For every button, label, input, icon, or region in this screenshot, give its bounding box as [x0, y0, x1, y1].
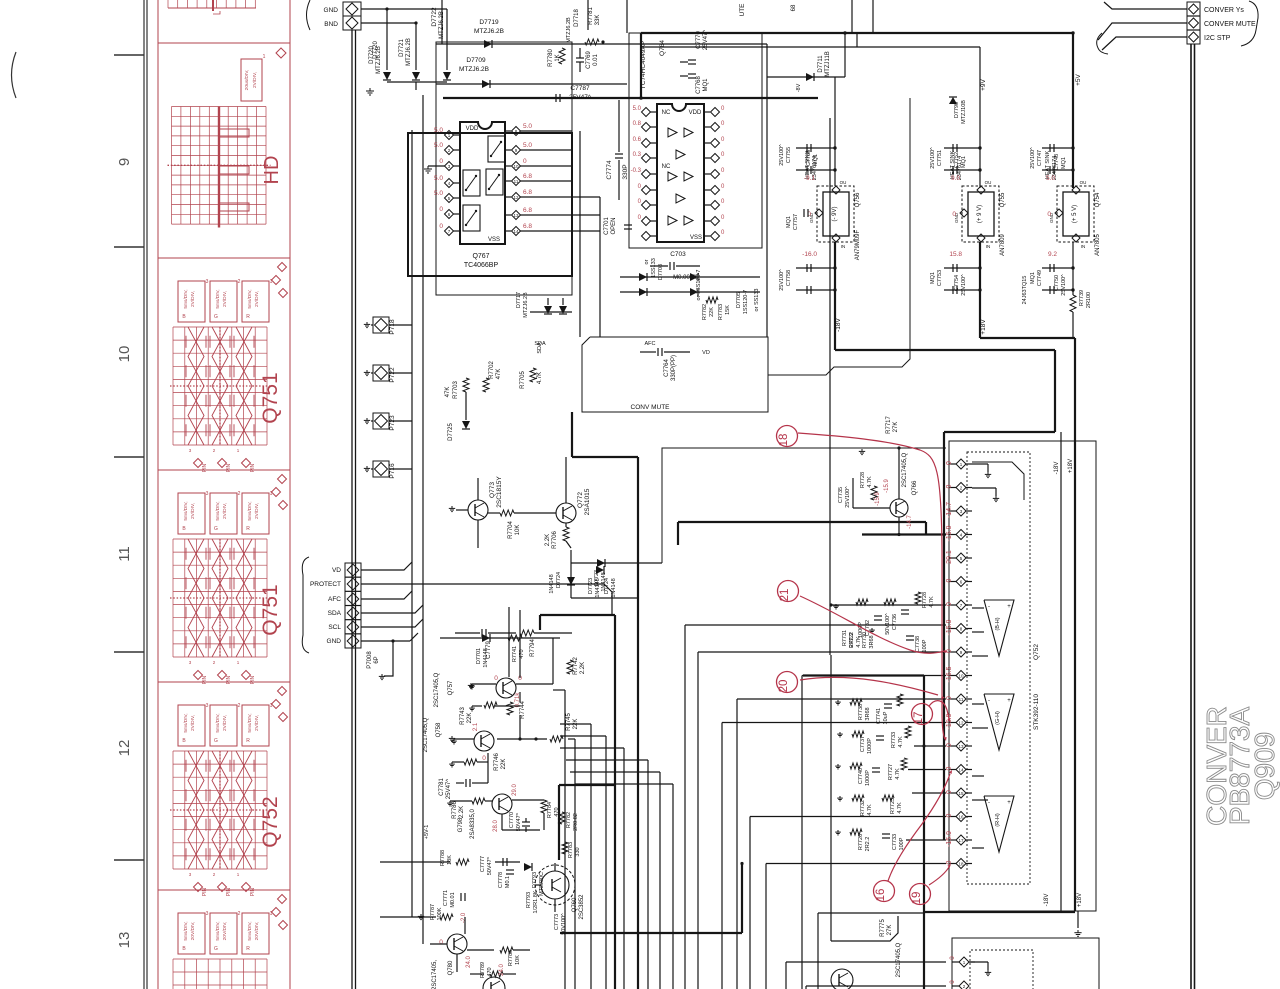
svg-text:-18V: -18V	[1044, 894, 1050, 907]
svg-text:1K: 1K	[555, 54, 561, 61]
svg-text:2.2K: 2.2K	[459, 806, 465, 818]
svg-text:25V100^: 25V100^	[1061, 274, 1067, 296]
svg-text:CONVER MUTE: CONVER MUTE	[1204, 21, 1256, 28]
svg-text:R7788: R7788	[508, 950, 514, 966]
svg-text:-14.7: -14.7	[946, 502, 953, 518]
svg-text:1000P: 1000P	[865, 770, 871, 786]
svg-text:24J63TQ15: 24J63TQ15	[1022, 276, 1028, 305]
svg-text:MQ1: MQ1	[961, 156, 967, 168]
svg-text:0: 0	[482, 755, 486, 762]
svg-text:25V100^: 25V100^	[930, 147, 936, 169]
svg-text:C7747: C7747	[1037, 150, 1043, 166]
svg-text:AN7805: AN7805	[1095, 233, 1101, 255]
svg-text:C7756: C7756	[806, 150, 812, 166]
svg-text:10: 10	[116, 346, 133, 363]
svg-text:AFC: AFC	[645, 341, 656, 347]
svg-text:0: 0	[439, 939, 443, 946]
svg-text:or SS133: or SS133	[754, 289, 760, 312]
svg-text:C7737: C7737	[860, 736, 866, 752]
svg-text:D7723: D7723	[594, 570, 600, 586]
svg-text:-15.9: -15.9	[875, 492, 881, 506]
svg-text:R7793: R7793	[526, 892, 532, 908]
svg-text:330P: 330P	[622, 164, 629, 179]
svg-text:Q756: Q756	[855, 192, 861, 207]
svg-text:-18V: -18V	[1054, 462, 1060, 475]
svg-text:12: 12	[513, 195, 519, 200]
svg-text:GND: GND	[327, 638, 342, 645]
svg-text:2SC17405,Q: 2SC17405,Q	[896, 942, 902, 977]
svg-text:D7719: D7719	[479, 19, 499, 26]
svg-text:(+ 5 V): (+ 5 V)	[1072, 205, 1078, 223]
svg-text:(- 9V): (- 9V)	[832, 206, 838, 221]
svg-text:0: 0	[439, 158, 443, 165]
svg-text:D7705: D7705	[736, 292, 742, 308]
svg-text:Q752: Q752	[259, 796, 282, 847]
svg-text:C7738: C7738	[915, 636, 921, 652]
svg-text:29.1: 29.1	[946, 550, 953, 564]
svg-text:5.0: 5.0	[434, 142, 443, 149]
svg-text:AN79M09F: AN79M09F	[855, 229, 861, 260]
svg-text:(R-H): (R-H)	[995, 813, 1001, 827]
svg-text:R7732: R7732	[860, 800, 866, 816]
svg-text:VDD: VDD	[689, 110, 702, 116]
svg-text:3R68: 3R68	[865, 707, 871, 720]
svg-text:MTZJ6.2B: MTZJ6.2B	[523, 292, 529, 318]
svg-text:3: 3	[206, 911, 209, 917]
svg-text:4.7K: 4.7K	[895, 768, 901, 780]
svg-text:5ms/DIV,: 5ms/DIV,	[183, 289, 189, 308]
svg-text:R7727: R7727	[888, 764, 894, 780]
svg-text:13: 13	[116, 932, 133, 949]
svg-text:C7754: C7754	[954, 275, 960, 291]
svg-text:12: 12	[958, 721, 964, 726]
svg-text:OU: OU	[1080, 180, 1087, 185]
svg-text:VDD: VDD	[466, 126, 479, 132]
svg-text:29.0: 29.0	[512, 784, 518, 796]
svg-text:5ms/DIV,: 5ms/DIV,	[247, 921, 253, 940]
svg-text:G: G	[214, 526, 218, 532]
svg-text:R7728: R7728	[860, 472, 866, 488]
svg-text:22K: 22K	[467, 713, 473, 724]
svg-text:R7731: R7731	[842, 630, 848, 646]
svg-text:IN: IN	[841, 244, 846, 249]
svg-text:C7777: C7777	[480, 856, 486, 872]
svg-text:100K: 100K	[437, 907, 443, 920]
svg-text:Q751: Q751	[259, 584, 282, 635]
svg-text:NC: NC	[662, 110, 671, 116]
svg-text:27K: 27K	[887, 925, 893, 936]
svg-text:C7758: C7758	[786, 270, 792, 286]
svg-text:M0.1: M0.1	[505, 876, 511, 888]
svg-text:D7722: D7722	[431, 7, 438, 27]
svg-text:6P: 6P	[374, 656, 380, 663]
svg-text:-14.7: -14.7	[907, 515, 913, 529]
svg-text:AFC: AFC	[328, 596, 341, 603]
svg-text:Q755: Q755	[1000, 192, 1006, 207]
svg-text:4.7K: 4.7K	[867, 804, 873, 816]
svg-text:2SC17405,Q: 2SC17405,Q	[423, 717, 429, 752]
svg-text:5ms/DIV,: 5ms/DIV,	[215, 501, 221, 520]
svg-text:33K: 33K	[595, 15, 601, 26]
svg-text:20V/DIV,: 20V/DIV,	[254, 922, 260, 941]
svg-text:C7740: C7740	[858, 768, 864, 784]
svg-text:+: +	[1007, 698, 1011, 704]
svg-text:MQ1: MQ1	[813, 154, 819, 166]
svg-text:2SC17405,Q: 2SC17405,Q	[434, 672, 440, 707]
svg-text:P722: P722	[389, 367, 396, 383]
svg-text:+5V-1: +5V-1	[424, 825, 430, 840]
svg-text:2SC17405,: 2SC17405,	[432, 960, 438, 989]
svg-text:2V/DIV,: 2V/DIV,	[190, 503, 196, 519]
svg-text:20: 20	[778, 680, 790, 693]
svg-text:SDA: SDA	[328, 610, 342, 617]
svg-text:Q767: Q767	[472, 253, 489, 260]
svg-text:(G-H): (G-H)	[995, 711, 1001, 725]
svg-text:2V/DIV,: 2V/DIV,	[222, 291, 228, 307]
svg-text:PIN: PIN	[226, 463, 232, 472]
svg-text:CONVER: CONVER	[1201, 706, 1232, 826]
svg-text:Q760: Q760	[572, 897, 578, 912]
svg-text:2.2K: 2.2K	[580, 662, 586, 674]
svg-text:-0.3: -0.3	[631, 168, 642, 174]
svg-text:5ms/DIV,: 5ms/DIV,	[183, 501, 189, 520]
svg-text:R7784: R7784	[547, 802, 553, 818]
svg-text:D7790: D7790	[954, 102, 960, 118]
svg-text:1SS133: 1SS133	[651, 258, 657, 278]
svg-text:0: 0	[946, 790, 953, 794]
svg-text:24.0: 24.0	[466, 956, 472, 968]
svg-text:C7768: C7768	[696, 76, 702, 94]
svg-text:Q757: Q757	[448, 680, 454, 695]
svg-text:5.0: 5.0	[523, 123, 532, 130]
svg-text:1SS120-7: 1SS120-7	[743, 290, 749, 314]
svg-text:2V/DIV,: 2V/DIV,	[254, 503, 260, 519]
svg-text:21: 21	[779, 589, 791, 602]
svg-text:5.0: 5.0	[633, 106, 642, 112]
svg-text:C703: C703	[670, 251, 686, 258]
svg-text:0: 0	[946, 649, 953, 653]
svg-text:18: 18	[778, 434, 790, 447]
svg-text:R7739: R7739	[1079, 290, 1085, 306]
svg-text:C7787: C7787	[570, 85, 590, 92]
svg-text:D7717: D7717	[516, 292, 522, 308]
svg-text:5ms/DIV,: 5ms/DIV,	[247, 713, 253, 732]
svg-text:22K: 22K	[573, 719, 579, 730]
svg-text:D7711: D7711	[818, 55, 824, 73]
svg-text:-15.9: -15.9	[884, 479, 890, 493]
svg-text:0: 0	[494, 675, 498, 682]
svg-text:R7788: R7788	[440, 850, 446, 866]
svg-text:47K: 47K	[445, 387, 451, 398]
svg-text:BND: BND	[324, 21, 338, 28]
svg-text:6.8: 6.8	[523, 173, 532, 180]
svg-text:20us/DIV,: 20us/DIV,	[244, 70, 250, 91]
svg-text:470: 470	[487, 967, 493, 976]
svg-text:2: 2	[238, 491, 241, 497]
svg-text:-8V: -8V	[796, 83, 802, 92]
svg-text:2V/DIV,: 2V/DIV,	[222, 503, 228, 519]
svg-text:C7757: C7757	[793, 214, 799, 230]
svg-text:2V/DIV,: 2V/DIV,	[254, 715, 260, 731]
svg-text:25V100^: 25V100^	[845, 486, 851, 508]
svg-text:25V100^: 25V100^	[961, 274, 967, 296]
svg-text:R7745: R7745	[566, 713, 572, 731]
svg-text:20V/DIV,: 20V/DIV,	[190, 922, 196, 941]
svg-text:5.0: 5.0	[434, 175, 443, 182]
svg-text:-2.0: -2.0	[461, 912, 467, 923]
svg-text:18K: 18K	[447, 855, 453, 865]
svg-text:D7721: D7721	[399, 39, 405, 57]
svg-text:2SA8335,0: 2SA8335,0	[470, 808, 476, 838]
svg-text:19: 19	[911, 892, 923, 905]
svg-text:10: 10	[958, 674, 964, 679]
svg-text:18: 18	[958, 862, 964, 867]
svg-text:10: 10	[513, 164, 519, 169]
svg-text:-15.9: -15.9	[946, 525, 953, 541]
svg-text:-: -	[988, 800, 990, 806]
svg-text:C7752: C7752	[954, 152, 960, 168]
svg-text:5ms/DIV,: 5ms/DIV,	[215, 921, 221, 940]
svg-text:R: R	[246, 526, 250, 532]
svg-text:C7773: C7773	[554, 914, 560, 930]
svg-text:12: 12	[116, 740, 133, 757]
svg-text:P718: P718	[389, 319, 396, 335]
svg-text:PIN: PIN	[202, 675, 208, 684]
svg-text:VD: VD	[332, 567, 341, 574]
svg-text:5ms/DIV,: 5ms/DIV,	[215, 713, 221, 732]
svg-text:Q752: Q752	[1033, 644, 1040, 660]
svg-text:IN: IN	[1081, 244, 1086, 249]
svg-text:4.7K: 4.7K	[898, 736, 904, 748]
svg-text:0: 0	[946, 813, 953, 817]
svg-text:3R68: 3R68	[869, 635, 875, 648]
svg-text:15K: 15K	[725, 305, 731, 315]
svg-text:0: 0	[946, 461, 953, 465]
svg-text:2SC3852: 2SC3852	[579, 894, 585, 920]
svg-text:5ms/DIV,: 5ms/DIV,	[183, 713, 189, 732]
svg-text:5.0: 5.0	[1046, 175, 1055, 182]
svg-text:13: 13	[958, 744, 964, 749]
svg-text:D7718: D7718	[574, 9, 580, 27]
svg-text:R: R	[246, 946, 250, 952]
svg-text:0: 0	[952, 211, 956, 218]
svg-text:G798: G798	[458, 817, 464, 832]
svg-text:MTZJ6.2B: MTZJ6.2B	[566, 17, 572, 43]
svg-text:R7702: R7702	[489, 361, 495, 379]
svg-text:D7720: D7720	[369, 46, 375, 64]
svg-text:4.7K: 4.7K	[537, 372, 543, 384]
svg-text:P723: P723	[389, 415, 396, 431]
svg-text:CONVER Ys: CONVER Ys	[1204, 7, 1244, 14]
svg-text:IN: IN	[986, 244, 991, 249]
svg-text:MTZJ11B: MTZJ11B	[825, 51, 831, 77]
svg-text:1/2R1.8K: 1/2R1.8K	[533, 890, 539, 913]
svg-text:R7782: R7782	[566, 812, 572, 828]
svg-text:0: 0	[439, 223, 443, 230]
svg-text:1: 1	[263, 54, 266, 60]
svg-text:R7733: R7733	[891, 732, 897, 748]
svg-text:16: 16	[958, 815, 964, 820]
svg-text:VD: VD	[702, 350, 710, 356]
svg-text:OU: OU	[840, 180, 847, 185]
svg-text:17: 17	[913, 712, 925, 725]
svg-text:+5V: +5V	[1075, 73, 1082, 85]
svg-text:10K: 10K	[515, 955, 521, 965]
svg-text:OU: OU	[985, 180, 992, 185]
svg-text:0: 0	[949, 956, 956, 960]
svg-text:C7741: C7741	[876, 708, 882, 724]
svg-text:10K: 10K	[515, 525, 521, 536]
svg-text:R7783: R7783	[568, 842, 574, 858]
svg-text:9: 9	[116, 158, 133, 166]
svg-text:1N4148: 1N4148	[601, 572, 607, 591]
svg-text:2.1: 2.1	[473, 722, 479, 731]
svg-text:PIN: PIN	[202, 463, 208, 472]
svg-text:17: 17	[958, 838, 964, 843]
svg-text:2: 2	[238, 279, 241, 285]
svg-text:C7749: C7749	[1037, 270, 1043, 286]
svg-text:-15.9: -15.9	[946, 831, 953, 847]
svg-text:5ms/DIV,: 5ms/DIV,	[215, 289, 221, 308]
svg-text:2R2.2: 2R2.2	[865, 837, 871, 852]
svg-text:C7751: C7751	[937, 150, 943, 166]
svg-text:GND: GND	[324, 7, 339, 14]
svg-text:2V/DIV,: 2V/DIV,	[190, 291, 196, 307]
svg-text:0: 0	[946, 696, 953, 700]
svg-text:5ms/DIV,: 5ms/DIV,	[183, 921, 189, 940]
svg-text:1N4148: 1N4148	[549, 574, 555, 593]
svg-text:MQ1: MQ1	[1061, 157, 1067, 169]
svg-text:11: 11	[959, 697, 964, 702]
svg-text:C7750: C7750	[1054, 275, 1060, 291]
svg-text:C7701: C7701	[604, 217, 610, 235]
svg-text:R7744: R7744	[520, 701, 526, 719]
svg-text:-: -	[988, 604, 990, 610]
svg-text:0: 0	[946, 743, 953, 747]
svg-text:R7705: R7705	[520, 371, 526, 389]
svg-text:R7704: R7704	[508, 521, 514, 539]
svg-text:2: 2	[238, 911, 241, 917]
svg-text:330: 330	[575, 847, 581, 856]
svg-text:(+ 9 V): (+ 9 V)	[977, 205, 983, 223]
svg-text:UTE: UTE	[739, 3, 746, 17]
svg-text:R7723: R7723	[890, 798, 896, 814]
svg-text:0.6: 0.6	[633, 137, 642, 143]
svg-text:-16.5: -16.5	[946, 666, 953, 682]
svg-text:3: 3	[206, 279, 209, 285]
svg-text:0: 0	[946, 578, 953, 582]
svg-text:+: +	[1007, 604, 1011, 610]
svg-text:M0.01: M0.01	[450, 892, 456, 907]
svg-text:14: 14	[513, 229, 519, 234]
svg-text:5ms/DIV,: 5ms/DIV,	[247, 289, 253, 308]
svg-text:R7794: R7794	[530, 639, 536, 657]
svg-text:VSS: VSS	[488, 237, 500, 243]
svg-text:C7748: C7748	[1054, 154, 1060, 170]
svg-text:PIN: PIN	[250, 887, 256, 896]
svg-text:R7789: R7789	[480, 962, 486, 978]
svg-text:C7769: C7769	[586, 51, 592, 69]
svg-text:OPEN: OPEN	[611, 217, 617, 234]
svg-text:R: R	[246, 314, 250, 320]
svg-text:2SC17405,Q: 2SC17405,Q	[902, 452, 908, 487]
svg-text:2V/DIV,: 2V/DIV,	[190, 715, 196, 731]
svg-text:D7709: D7709	[466, 57, 486, 64]
svg-text:25V47^: 25V47^	[446, 779, 452, 799]
svg-text:50V47^: 50V47^	[516, 812, 522, 831]
svg-text:0: 0	[523, 158, 527, 165]
svg-text:R7738: R7738	[858, 704, 864, 720]
svg-text:0.01: 0.01	[593, 54, 599, 66]
svg-text:HD: HD	[261, 156, 283, 185]
svg-text:27K: 27K	[893, 422, 899, 433]
svg-text:50V100^: 50V100^	[885, 613, 891, 635]
svg-text:C7771: C7771	[443, 890, 449, 906]
svg-text:G: G	[214, 314, 218, 320]
svg-text:C7781: C7781	[439, 778, 445, 796]
svg-text:MQ1: MQ1	[1030, 272, 1036, 284]
svg-text:R7703: R7703	[453, 381, 459, 399]
svg-text:R7786: R7786	[452, 801, 458, 819]
svg-text:MQ1: MQ1	[703, 78, 709, 92]
svg-text:R7775: R7775	[880, 919, 886, 937]
svg-text:C7755: C7755	[786, 147, 792, 163]
svg-text:Q754: Q754	[1095, 192, 1101, 207]
svg-text:0: 0	[946, 860, 953, 864]
svg-text:2V/DIV,: 2V/DIV,	[222, 715, 228, 731]
svg-text:2: 2	[238, 703, 241, 709]
svg-text:+18V: +18V	[1077, 893, 1083, 907]
svg-text:+9V: +9V	[980, 78, 987, 90]
svg-text:20V/DIV,: 20V/DIV,	[222, 922, 228, 941]
svg-text:0: 0	[439, 206, 443, 213]
svg-text:PIN: PIN	[226, 887, 232, 896]
svg-text:Q780: Q780	[448, 960, 454, 975]
svg-text:C7764: C7764	[664, 359, 670, 377]
svg-text:6.8: 6.8	[523, 189, 532, 196]
svg-text:PIN: PIN	[250, 675, 256, 684]
svg-text:0: 0	[1047, 211, 1051, 218]
svg-text:6.8: 6.8	[523, 223, 532, 230]
svg-text:-: -	[988, 698, 990, 704]
svg-text:C7753: C7753	[937, 270, 943, 286]
svg-text:PIN: PIN	[202, 887, 208, 896]
svg-text:2R100: 2R100	[1086, 292, 1092, 308]
svg-text:SCL: SCL	[328, 624, 341, 631]
svg-text:5.0: 5.0	[434, 127, 443, 134]
svg-text:47K: 47K	[496, 369, 502, 380]
svg-text:2V/DIV,: 2V/DIV,	[252, 72, 258, 88]
svg-text:13: 13	[513, 213, 519, 218]
svg-text:R7783: R7783	[718, 304, 724, 320]
svg-text:2V/DIV,: 2V/DIV,	[254, 291, 260, 307]
svg-text:PIN: PIN	[226, 675, 232, 684]
svg-text:MTZJ6.2B: MTZJ6.2B	[376, 46, 382, 74]
svg-text:PIN: PIN	[250, 463, 256, 472]
svg-text:MTZJ6.2B: MTZJ6.2B	[474, 28, 504, 35]
svg-text:or: or	[644, 259, 650, 264]
svg-text:25V100^: 25V100^	[779, 269, 785, 291]
svg-text:MTZJ10B: MTZJ10B	[961, 100, 967, 124]
svg-text:68: 68	[791, 4, 797, 11]
svg-text:11: 11	[514, 179, 519, 184]
svg-text:R7787: R7787	[430, 904, 436, 920]
svg-text:3: 3	[206, 703, 209, 709]
svg-text:0.8: 0.8	[633, 121, 642, 127]
svg-text:G: G	[214, 738, 218, 744]
svg-text:100P: 100P	[922, 639, 928, 652]
svg-text:5.0: 5.0	[434, 190, 443, 197]
